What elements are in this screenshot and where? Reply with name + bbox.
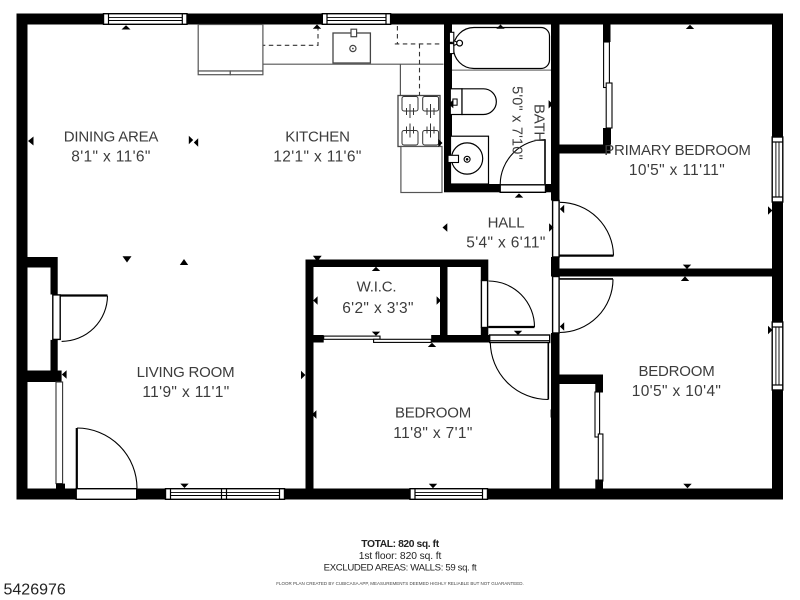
svg-text:6'2" x 3'3": 6'2" x 3'3"	[342, 300, 414, 317]
svg-text:12'1" x 11'6": 12'1" x 11'6"	[273, 149, 361, 166]
svg-text:5426976: 5426976	[4, 582, 66, 599]
svg-text:HALL: HALL	[488, 215, 525, 232]
svg-text:5'0" x 7'10": 5'0" x 7'10"	[509, 86, 525, 160]
svg-text:FLOOR PLAN CREATED BY CUBICASA: FLOOR PLAN CREATED BY CUBICASA APP, MEAS…	[276, 581, 523, 586]
svg-text:BEDROOM: BEDROOM	[395, 405, 471, 422]
svg-text:LIVING ROOM: LIVING ROOM	[137, 364, 235, 381]
svg-text:BATH: BATH	[531, 104, 548, 142]
svg-text:11'9" x 11'1": 11'9" x 11'1"	[142, 384, 229, 401]
svg-text:W.I.C.: W.I.C.	[357, 279, 397, 296]
svg-text:KITCHEN: KITCHEN	[285, 128, 349, 145]
svg-text:1st floor: 820 sq. ft: 1st floor: 820 sq. ft	[359, 551, 442, 562]
svg-text:TOTAL: 820 sq. ft: TOTAL: 820 sq. ft	[361, 539, 439, 550]
svg-text:DINING AREA: DINING AREA	[64, 128, 159, 145]
svg-text:10'5" x 11'11": 10'5" x 11'11"	[629, 162, 725, 179]
svg-text:5'4" x 6'11": 5'4" x 6'11"	[466, 235, 545, 252]
svg-text:EXCLUDED AREAS: WALLS: 59 sq.: EXCLUDED AREAS: WALLS: 59 sq. ft	[324, 563, 477, 574]
svg-text:11'8" x 7'1": 11'8" x 7'1"	[393, 425, 472, 442]
svg-text:10'5" x 10'4": 10'5" x 10'4"	[632, 383, 722, 400]
svg-text:8'1" x 11'6": 8'1" x 11'6"	[71, 149, 150, 166]
svg-text:BEDROOM: BEDROOM	[638, 363, 714, 380]
svg-text:PRIMARY BEDROOM: PRIMARY BEDROOM	[604, 142, 750, 159]
